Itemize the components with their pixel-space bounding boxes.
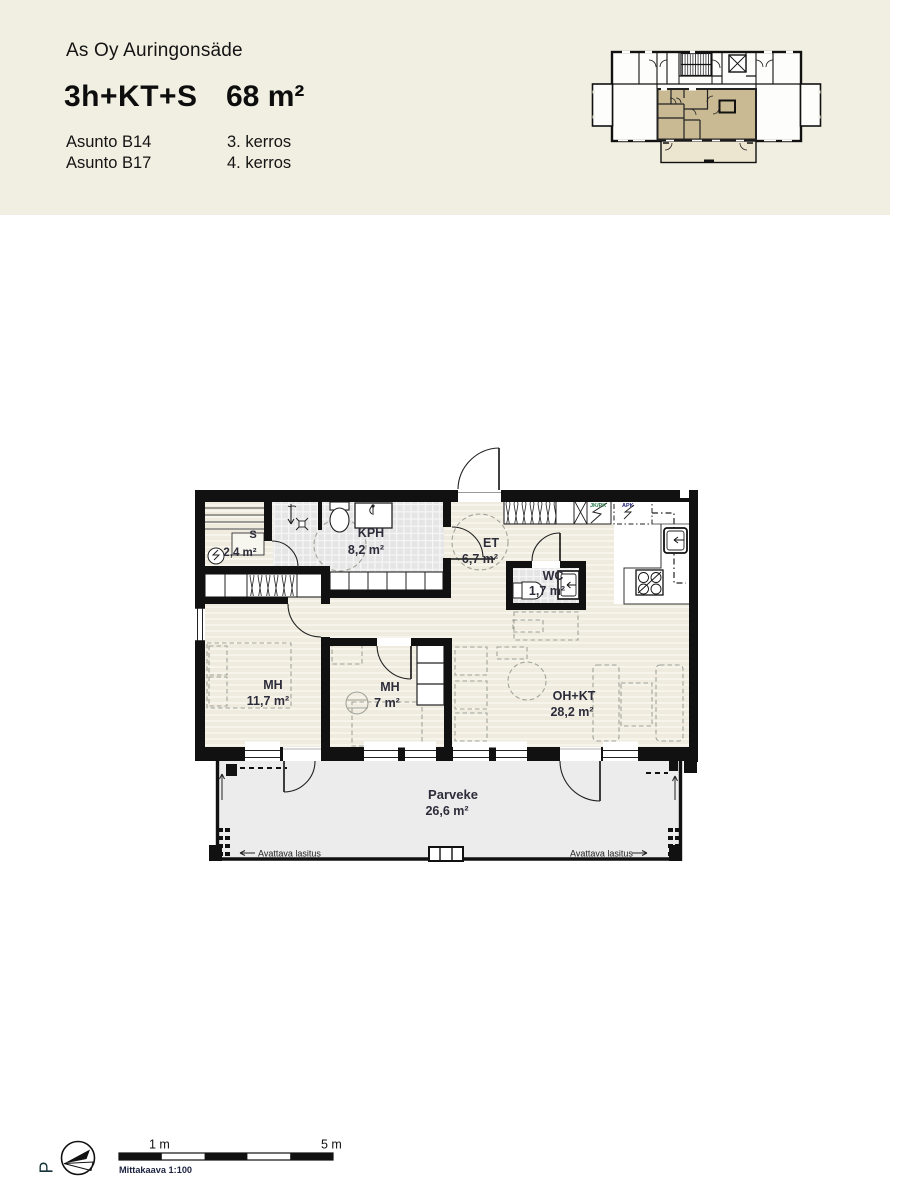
svg-text:MH: MH <box>380 680 399 694</box>
svg-text:5 m: 5 m <box>321 1138 342 1152</box>
svg-text:Avattava lasitus: Avattava lasitus <box>258 849 321 859</box>
svg-text:WC: WC <box>543 569 564 583</box>
svg-text:MH: MH <box>263 678 282 692</box>
svg-text:11,7 m²: 11,7 m² <box>247 694 289 708</box>
svg-text:1 m: 1 m <box>149 1138 170 1152</box>
svg-text:8,2 m²: 8,2 m² <box>348 543 384 557</box>
svg-text:KPH: KPH <box>358 526 384 540</box>
svg-text:1,7 m²: 1,7 m² <box>529 584 565 598</box>
svg-text:2,4 m²: 2,4 m² <box>223 547 256 559</box>
svg-text:P: P <box>37 1161 57 1173</box>
svg-text:ET: ET <box>483 536 499 550</box>
svg-text:28,2 m²: 28,2 m² <box>550 705 593 719</box>
svg-text:7 m²: 7 m² <box>374 696 400 710</box>
svg-text:Mittakaava 1:100: Mittakaava 1:100 <box>119 1165 192 1175</box>
svg-text:JK/PK: JK/PK <box>590 503 606 509</box>
svg-text:Parveke: Parveke <box>428 787 478 802</box>
svg-text:S: S <box>249 529 256 541</box>
svg-text:Avattava lasitus: Avattava lasitus <box>570 849 633 859</box>
svg-text:6,7 m²: 6,7 m² <box>462 552 498 566</box>
svg-text:APK: APK <box>622 503 634 509</box>
svg-text:OH+KT: OH+KT <box>553 689 596 703</box>
svg-text:26,6 m²: 26,6 m² <box>425 804 468 818</box>
